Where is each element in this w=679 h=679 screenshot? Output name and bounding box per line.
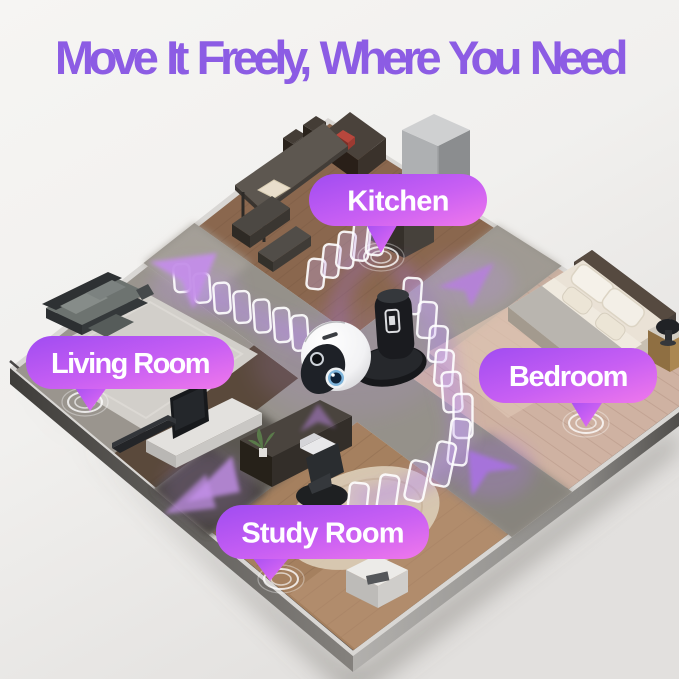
svg-text:Kitchen: Kitchen [347, 186, 448, 218]
svg-text:Study Room: Study Room [241, 518, 403, 550]
svg-text:Living Room: Living Room [51, 348, 209, 380]
svg-text:Bedroom: Bedroom [509, 361, 627, 393]
svg-text:Move It Freely, Where You Need: Move It Freely, Where You Need [55, 31, 626, 84]
